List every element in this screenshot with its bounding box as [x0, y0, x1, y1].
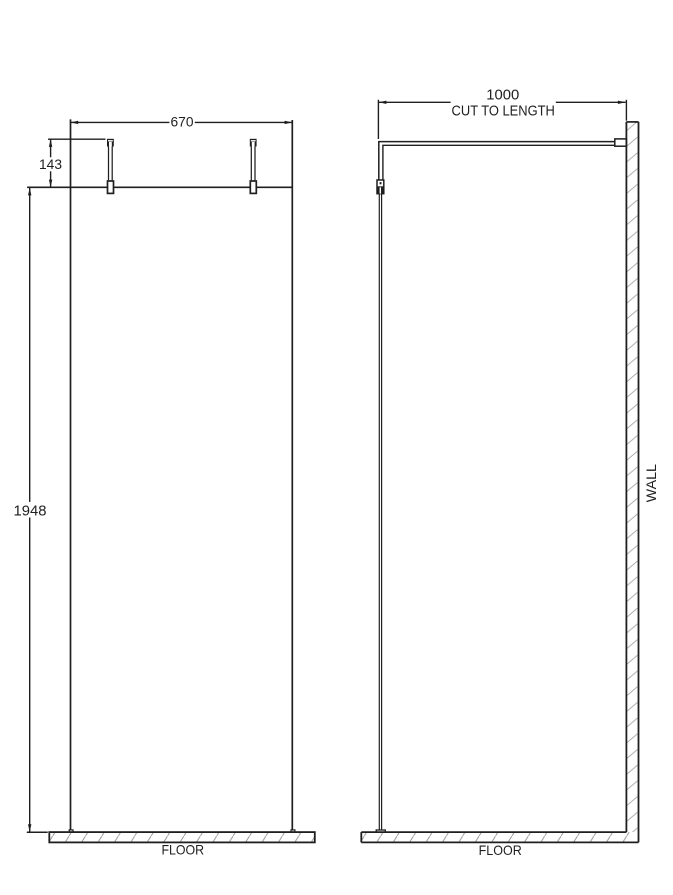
svg-text:1000: 1000 — [486, 87, 519, 103]
svg-text:1948: 1948 — [14, 503, 47, 519]
svg-text:670: 670 — [171, 113, 194, 129]
svg-text:FLOOR: FLOOR — [479, 842, 522, 858]
svg-text:WALL: WALL — [643, 464, 659, 503]
svg-text:FLOOR: FLOOR — [161, 841, 204, 857]
svg-text:CUT TO LENGTH: CUT TO LENGTH — [452, 104, 555, 120]
svg-text:143: 143 — [39, 156, 62, 172]
